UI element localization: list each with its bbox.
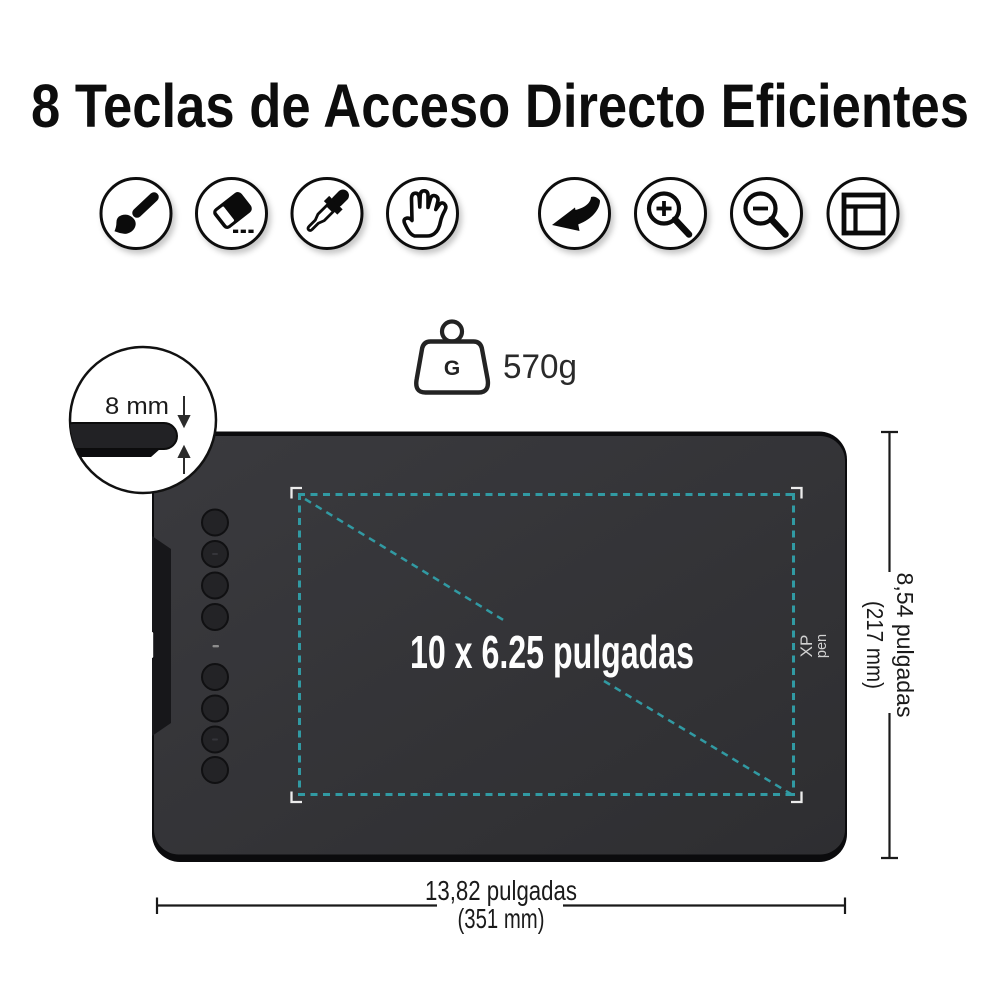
svg-text:8 mm: 8 mm [105,393,169,420]
svg-text:8,54 pulgadas: 8,54 pulgadas [892,573,918,718]
svg-text:(217 mm): (217 mm) [862,601,888,689]
svg-text:570g: 570g [503,348,577,386]
svg-text:(351 mm): (351 mm) [458,903,545,934]
svg-text:10 x 6.25 pulgadas: 10 x 6.25 pulgadas [410,626,694,678]
svg-text:13,82 pulgadas: 13,82 pulgadas [425,875,577,906]
svg-text:8 Teclas de Acceso Directo Efi: 8 Teclas de Acceso Directo Eficientes [31,72,969,140]
svg-text:G: G [444,357,460,380]
svg-text:pen: pen [814,634,830,658]
